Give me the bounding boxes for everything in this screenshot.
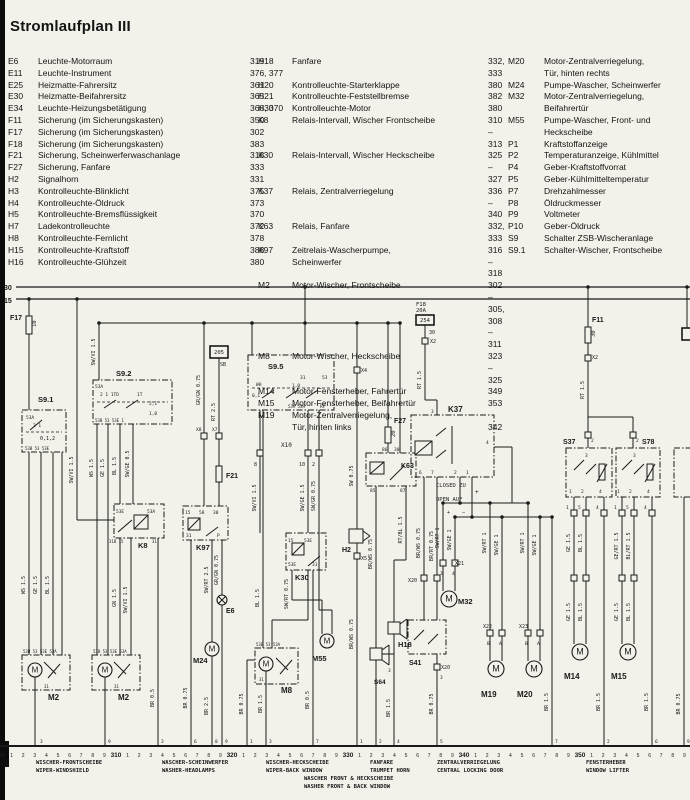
- track-number-minor: 8: [207, 753, 210, 759]
- diagram-label: M55: [312, 654, 327, 663]
- symbol-rect: [525, 630, 531, 636]
- diagram-label: 3: [40, 739, 43, 745]
- component-code: H3: [8, 186, 38, 198]
- motor-letter: M: [263, 660, 270, 669]
- component-code: H30: [258, 103, 292, 115]
- symbol-stroke: [634, 464, 644, 474]
- track-number-minor: 4: [45, 753, 48, 759]
- diagram-label: S9.2: [116, 369, 131, 378]
- diagram-label: F17: [10, 315, 22, 322]
- symbol-rect: [583, 510, 589, 516]
- wire-gauge-label: GE 1.5: [566, 603, 572, 621]
- diagram-label: 2: [379, 739, 382, 745]
- legend-row-H18: H18Fanfare332, 333: [258, 56, 504, 80]
- component-name: Heizmatte-Fahrersitz: [38, 80, 250, 92]
- symbol-stroke: [645, 464, 655, 482]
- component-code: P9: [508, 209, 544, 221]
- component-pages: 349: [488, 386, 504, 398]
- legend-row-P9: P9Voltmeter: [508, 209, 688, 221]
- junction-dot: [453, 515, 457, 519]
- diagram-label: 2: [636, 438, 639, 444]
- diagram-label: B: [525, 641, 528, 647]
- component-box: [22, 410, 66, 452]
- symbol-stroke: [414, 630, 424, 640]
- component-code: E25: [8, 80, 38, 92]
- component-name: Kontrolleuchte-Bremsflüssigkeit: [38, 209, 250, 221]
- diagram-label: 3: [269, 739, 272, 745]
- diagram-label: 30: [213, 510, 219, 516]
- symbol-rect: [388, 622, 400, 634]
- diagram-label: S64: [374, 679, 386, 686]
- track-number-minor: 8: [439, 753, 442, 759]
- symbol-rect: [349, 529, 363, 543]
- diagram-label: K97: [196, 543, 210, 552]
- component-box: [566, 448, 612, 497]
- track-number-minor: 5: [637, 753, 640, 759]
- symbol-rect: [421, 575, 427, 581]
- component-pages: 310 – 313: [488, 115, 504, 150]
- component-name: Ladekontrolleuchte: [38, 221, 250, 233]
- circuit-section-caption: WASHER-HEADLAMPS: [162, 768, 215, 774]
- wire-gauge-label: BR 1.5: [544, 693, 550, 711]
- motor-letter: M: [324, 637, 331, 646]
- component-code: K8: [258, 115, 292, 150]
- diagram-label: M2: [118, 693, 130, 702]
- component-code: E34: [8, 103, 38, 115]
- track-number-minor: 9: [335, 753, 338, 759]
- wire-gauge-label: WS 1.5: [21, 576, 27, 594]
- component-code: E11: [8, 68, 38, 80]
- circuit-section-caption: WASCHER-SCHEINWERFER: [162, 760, 229, 766]
- diagram-label: 53B 53 53E 1: [95, 418, 124, 423]
- component-box: [616, 448, 660, 497]
- diagram-label: H18: [398, 640, 412, 649]
- diagram-label: K8: [138, 541, 148, 550]
- component-name: Leuchte-Instrument: [38, 68, 250, 80]
- wire-gauge-label: BL 1.5: [578, 534, 584, 552]
- track-number-minor: 7: [312, 753, 315, 759]
- component-code: M2: [258, 280, 292, 351]
- track-number-minor: 3: [497, 753, 500, 759]
- diagram-label: 2 1: [33, 423, 41, 429]
- wire-gauge-label: GE 1.5: [100, 459, 106, 477]
- symbol-rect: [599, 464, 605, 480]
- component-code: S9: [508, 233, 544, 245]
- wire-gauge-label: SW/RT 1: [435, 527, 441, 548]
- diagram-label: 86: [382, 447, 388, 453]
- diagram-label: 2: [591, 438, 594, 444]
- legend-row-K30: K30Relais-Intervall, Wischer Heckscheibe…: [258, 150, 504, 185]
- motor-letter: M: [102, 666, 109, 675]
- diagram-label: 2 1 1TD: [100, 392, 119, 398]
- motor-letter: M: [445, 594, 453, 604]
- diagram-label: 31: [114, 684, 119, 689]
- component-code: P5: [508, 174, 544, 186]
- wire-gauge-label: SW/RT 1: [520, 532, 526, 553]
- track-number-minor: 9: [103, 753, 106, 759]
- component-box: [255, 648, 298, 684]
- junction-dot: [441, 501, 445, 505]
- component-name: Kontrolleuchte-Feststellbremse: [292, 91, 488, 103]
- wire-gauge-label: SW/GE 1: [447, 529, 453, 550]
- component-code: K97: [258, 245, 292, 280]
- legend-row-K8: K8Relais-Intervall, Wischer Frontscheibe…: [258, 115, 504, 150]
- diagram-label: X22: [483, 624, 492, 630]
- lamp-cross: [219, 597, 226, 604]
- legend-row-M24: M24Pumpe-Wascher, Scheinwerfer: [508, 80, 688, 92]
- symbol-stroke: [118, 664, 130, 678]
- component-code: M14: [258, 386, 292, 398]
- wire-gauge-label: SW/GR 0.75: [311, 481, 317, 511]
- circuit-section-caption: WASHER FRONT & BACK WINDOW: [304, 784, 391, 790]
- track-number-minor: 8: [555, 753, 558, 759]
- legend-row-P1: P1Kraftstoffanzeige: [508, 139, 688, 151]
- wire-gauge-label: BR 1.5: [596, 693, 602, 711]
- diagram-label: 1T: [137, 392, 143, 398]
- component-name: Kontrolleuchte-Glühzeit: [38, 257, 250, 269]
- symbol-rect: [487, 630, 493, 636]
- diagram-label: M32: [458, 597, 473, 606]
- component-code: F27: [8, 162, 38, 174]
- component-name: Geber-Öldruck: [544, 221, 688, 233]
- symbol-stroke: [370, 462, 384, 474]
- motor-letter: M: [624, 647, 632, 657]
- diagram-label: 15: [185, 510, 191, 516]
- track-number-minor: 4: [509, 753, 512, 759]
- diagram-label: M14: [564, 672, 580, 681]
- track-number-minor: 9: [683, 753, 686, 759]
- symbol-rect: [134, 515, 148, 529]
- wire-gauge-label: SW/RT 1: [482, 532, 488, 553]
- circuit-section-caption: WASCHER FRONT & HECKSCHEIBE: [304, 776, 393, 782]
- component-pages: 332, 333: [488, 221, 505, 245]
- wire-gauge-label: BR/WS 0.75: [416, 528, 422, 558]
- wire-gauge-label: SW/VI 1.5: [69, 456, 75, 483]
- component-name: Pumpe-Wascher, Scheinwerfer: [544, 80, 688, 92]
- legend-row-H21: H21Kontrolleuchte-Feststellbremse382: [258, 91, 504, 103]
- circuit-section-caption: ZENTRALVERRIEGELUNG: [437, 760, 501, 766]
- symbol-rect: [583, 575, 589, 581]
- diagram-label: 3: [633, 453, 636, 459]
- diagram-label: −: [462, 510, 465, 516]
- motor-letter: M: [32, 666, 39, 675]
- diagram-label: M8: [281, 686, 293, 695]
- junction-dot: [470, 515, 474, 519]
- diagram-label: S78: [642, 439, 655, 446]
- motor-symbol: [441, 591, 457, 607]
- wire-gauge-label: BR 2.5: [204, 697, 210, 715]
- component-name: Leuchte-Heizungsbetätigung: [38, 103, 250, 115]
- symbol-rect: [585, 432, 591, 438]
- symbol-stroke: [276, 658, 288, 670]
- diagram-label: 2: [312, 462, 315, 468]
- component-name: Heizmatte-Beifahrersitz: [38, 91, 250, 103]
- diagram-label: OPEN AUF: [436, 497, 463, 503]
- track-number-minor: 1: [358, 753, 361, 759]
- diagram-label: 53E: [116, 509, 124, 515]
- diagram-label: 8: [215, 739, 218, 745]
- diagram-label: 2: [581, 489, 584, 495]
- symbol-stroke: [114, 662, 126, 674]
- track-number-minor: 3: [33, 753, 36, 759]
- diagram-label: 3: [161, 739, 164, 745]
- wire-gauge-label: GE/RT 1.5: [614, 532, 620, 559]
- symbol-stroke: [126, 400, 138, 408]
- track-number-minor: 2: [602, 753, 605, 759]
- component-name: Motor-Fensterheber, Fahrertür: [292, 386, 488, 398]
- component-code: M8: [258, 351, 292, 386]
- symbol-rect: [216, 466, 222, 482]
- diagram-label: 7: [555, 739, 558, 745]
- diagram-label: 31: [312, 562, 318, 568]
- component-name: Kontrolleuchte-Motor: [292, 103, 488, 115]
- diagram-label: 6: [419, 470, 422, 476]
- symbol-stroke: [30, 420, 42, 430]
- component-code: H18: [258, 56, 292, 80]
- component-box: [114, 504, 164, 538]
- track-number-minor: 4: [625, 753, 628, 759]
- symbol-stroke: [104, 400, 116, 408]
- motor-symbol: [620, 644, 636, 660]
- component-code: M24: [508, 80, 544, 92]
- diagram-label: 2: [607, 739, 610, 745]
- legend-row-M15: M15Motor-Fensterheber, Beifahrertür353: [258, 398, 504, 410]
- component-code: P7: [508, 186, 544, 198]
- wire-gauge-label: BL/RT 1.5: [626, 532, 632, 559]
- circuit-section-caption: WISCHER-HECKSCHEIBE: [266, 760, 329, 766]
- diagram-label: 7: [431, 470, 434, 476]
- wire-gauge-label: BR 0.75: [676, 693, 682, 714]
- symbol-stroke: [400, 619, 407, 624]
- diagram-label: 53B 53 53E 53A: [23, 649, 57, 654]
- symbol-stroke: [622, 460, 632, 470]
- junction-dot: [586, 285, 590, 289]
- track-number-minor: 7: [196, 753, 199, 759]
- diagram-label: 87: [400, 488, 406, 494]
- circuit-section-caption: WIPER-BACK WINDOW: [266, 768, 323, 774]
- track-number-minor: 9: [451, 753, 454, 759]
- motor-letter: M: [492, 664, 500, 674]
- diagram-label: S9.1: [38, 395, 53, 404]
- component-code: M55: [508, 115, 544, 139]
- component-code: H2: [8, 174, 38, 186]
- component-name: Relais-Intervall, Wischer Frontscheibe: [292, 115, 488, 150]
- symbol-rect: [434, 664, 440, 670]
- component-pages: 323 – 325: [488, 351, 504, 386]
- wire-gauge-label: BR 0.5: [305, 691, 311, 709]
- component-box: [286, 533, 326, 570]
- diagram-label: M19: [481, 690, 497, 699]
- legend-row-M32: M32Motor-Zentralverriegelung, Beifahrert…: [508, 91, 688, 115]
- symbol-rect: [354, 553, 360, 559]
- wire-gauge-label: SW/GE 0.5: [125, 450, 131, 477]
- component-code: H16: [8, 257, 38, 269]
- legend-row-M55: M55Pumpe-Wascher, Front- und Heckscheibe: [508, 115, 688, 139]
- motor-letter: M: [530, 664, 538, 674]
- diagram-label: 53E: [304, 538, 312, 544]
- diagram-label: 6: [655, 739, 658, 745]
- track-number-minor: 7: [80, 753, 83, 759]
- diagram-label: X5: [361, 556, 367, 562]
- component-pages: 332, 333: [488, 56, 505, 80]
- component-name: Motor-Fensterheber, Beifahrertür: [292, 398, 488, 410]
- circuit-section-caption: FENSTERHEBER: [586, 760, 626, 766]
- component-code: F11: [8, 115, 38, 127]
- wire-gauge-label: SW/VI 1.5: [123, 586, 129, 613]
- component-name: Sicherung (im Sicherungskasten): [38, 115, 250, 127]
- symbol-rect: [188, 518, 200, 530]
- component-name: Relais, Zentralverriegelung: [292, 186, 488, 221]
- symbol-stroke: [292, 543, 304, 555]
- diagram-label: 10: [32, 320, 38, 327]
- track-number-minor: 6: [648, 753, 651, 759]
- symbol-rect: [370, 462, 384, 474]
- wire-gauge-label: SW/RT 2.5: [204, 566, 210, 593]
- track-number-major: 330: [343, 752, 354, 759]
- diagram-label: 31B 15: [109, 539, 124, 544]
- diagram-label: 2,1: [149, 401, 157, 407]
- diagram-label: 31: [152, 539, 157, 544]
- motor-symbol: [488, 661, 504, 677]
- track-number-minor: 6: [68, 753, 71, 759]
- diagram-label: 30: [4, 285, 12, 292]
- symbol-stroke: [188, 518, 200, 530]
- wire-gauge-label: BL 1.5: [45, 576, 51, 594]
- motor-symbol: [320, 634, 334, 648]
- component-pages: 380: [488, 80, 504, 92]
- track-number-minor: 5: [405, 753, 408, 759]
- track-number-minor: 1: [242, 753, 245, 759]
- component-name: Leuchte-Motorraum: [38, 56, 250, 68]
- symbol-rect: [630, 432, 636, 438]
- wire-gauge-label: GE 1.5: [614, 603, 620, 621]
- diagram-label: 8: [254, 462, 257, 468]
- diagram-label: 1: [569, 489, 572, 495]
- component-name: Öldruckmesser: [544, 198, 688, 210]
- junction-dot: [550, 515, 554, 519]
- track-number-minor: 1: [474, 753, 477, 759]
- symbol-rect: [499, 630, 505, 636]
- wire-gauge-label: RT 2.5: [211, 403, 217, 421]
- legend-row-M20: M20Motor-Zentralverriegelung, Tür, hinte…: [508, 56, 688, 80]
- diagram-label: B: [487, 641, 490, 647]
- track-number-minor: 3: [381, 753, 384, 759]
- wire-gauge-label: BR 0.75: [183, 687, 189, 708]
- component-pages: 382: [488, 91, 504, 103]
- diagram-label: 30: [394, 447, 400, 453]
- symbol-rect: [682, 328, 690, 340]
- track-number-minor: 9: [567, 753, 570, 759]
- component-name: Kontrolleuchte-Starterklappe: [292, 80, 488, 92]
- diagram-label: F11: [592, 317, 604, 324]
- component-box: [183, 506, 228, 540]
- diagram-label: 31: [259, 677, 264, 682]
- junction-dot: [488, 501, 492, 505]
- circuit-section-caption: CENTRAL LOCKING DOOR: [437, 768, 504, 774]
- diagram-label: 1,0: [149, 411, 157, 417]
- wire-gauge-label: BL 1.5: [112, 457, 118, 475]
- wire-gauge-label: BL 1.5: [626, 603, 632, 621]
- component-code: F17: [8, 127, 38, 139]
- component-box: [93, 380, 172, 424]
- diagram-label: X7: [212, 427, 218, 433]
- diagram-label: 5: [578, 505, 581, 511]
- diagram-label: M24: [193, 656, 208, 665]
- diagram-label: 7: [316, 739, 319, 745]
- diagram-label: 53A: [26, 415, 34, 421]
- component-code: H21: [258, 91, 292, 103]
- track-number-minor: 2: [138, 753, 141, 759]
- track-number-minor: 5: [173, 753, 176, 759]
- diagram-label: X10: [281, 442, 292, 449]
- motor-symbol: [98, 663, 112, 677]
- component-box: [366, 453, 416, 486]
- diagram-label: 205: [214, 350, 224, 356]
- track-number-minor: 2: [486, 753, 489, 759]
- track-number-minor: 8: [323, 753, 326, 759]
- circuit-section-caption: WIPER-WINDSHIELD: [36, 768, 90, 774]
- component-pages: 316 – 318: [488, 245, 504, 280]
- track-number-minor: 6: [300, 753, 303, 759]
- component-code: H5: [8, 209, 38, 221]
- legend-row-S9: S9Schalter ZSB-Wischeranlage: [508, 233, 688, 245]
- symbol-stroke: [382, 660, 389, 665]
- motor-symbol: [526, 661, 542, 677]
- component-code: H4: [8, 198, 38, 210]
- diagram-label: 31: [44, 684, 49, 689]
- lamp-cross: [219, 597, 226, 604]
- track-number-minor: 3: [265, 753, 268, 759]
- component-code: F18: [8, 139, 38, 151]
- symbol-stroke: [48, 664, 60, 678]
- diagram-label: 53E: [288, 562, 296, 568]
- diagram-label: 85: [370, 488, 376, 494]
- diagram-label: 1: [614, 505, 617, 511]
- legend-column-2: H18Fanfare332, 333H20Kontrolleuchte-Star…: [258, 56, 504, 434]
- symbol-rect: [647, 464, 653, 480]
- symbol-stroke: [400, 634, 407, 639]
- diagram-label: 15: [288, 538, 294, 544]
- track-number-minor: 2: [254, 753, 257, 759]
- diagram-label: K63: [401, 463, 414, 470]
- diagram-label: A: [499, 641, 502, 647]
- diagram-label: E6: [226, 608, 235, 615]
- symbol-stroke: [436, 450, 446, 458]
- component-name: Motor-Zentralverriegelung, Beifahrertür: [544, 91, 688, 115]
- diagram-label: X23: [519, 624, 528, 630]
- component-name: Motor-Zentralverriegelung, Tür, hinten l…: [292, 410, 488, 434]
- diagram-label: 2: [454, 470, 457, 476]
- symbol-stroke: [382, 645, 389, 650]
- diagram-label: 1: [566, 505, 569, 511]
- component-code: P1: [508, 139, 544, 151]
- symbol-rect: [631, 575, 637, 581]
- component-name: Sicherung (im Sicherungskasten): [38, 139, 250, 151]
- junction-dot: [97, 321, 101, 325]
- diagram-label: 2: [629, 489, 632, 495]
- track-number-minor: 3: [613, 753, 616, 759]
- diagram-label: 9: [225, 739, 228, 745]
- component-pages: 353: [488, 398, 504, 410]
- symbol-rect: [619, 510, 625, 516]
- component-pages: 302 – 305, 308 – 311: [488, 280, 505, 351]
- legend-row-P8: P8Öldruckmesser: [508, 198, 688, 210]
- symbol-stroke: [308, 556, 320, 566]
- component-code: S9.1: [508, 245, 544, 257]
- component-name: Motor-Wischer, Heckscheibe: [292, 351, 488, 386]
- symbol-rect: [305, 450, 311, 456]
- legend-row-K97: K97Zeitrelais-Wascherpumpe, Scheinwerfer…: [258, 245, 504, 280]
